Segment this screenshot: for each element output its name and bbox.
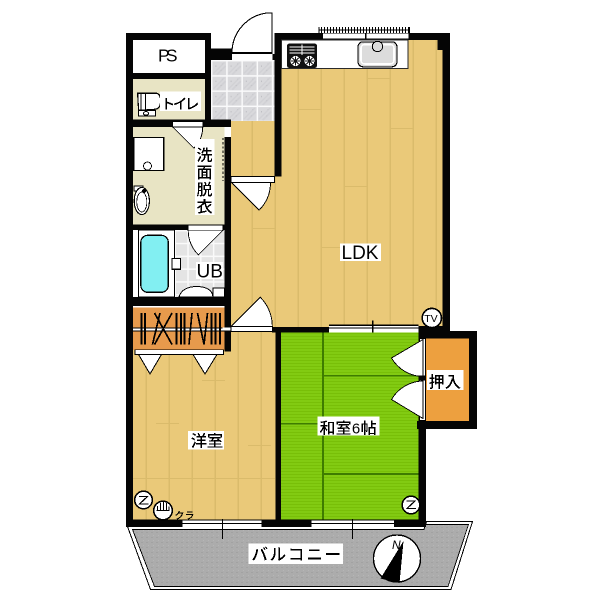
svg-text:PS: PS xyxy=(158,46,178,66)
svg-text:N: N xyxy=(392,538,401,552)
svg-text:UB: UB xyxy=(197,262,223,283)
svg-text:LDK: LDK xyxy=(342,243,379,264)
svg-text:6: 6 xyxy=(352,421,360,438)
svg-text:TV: TV xyxy=(424,313,437,325)
